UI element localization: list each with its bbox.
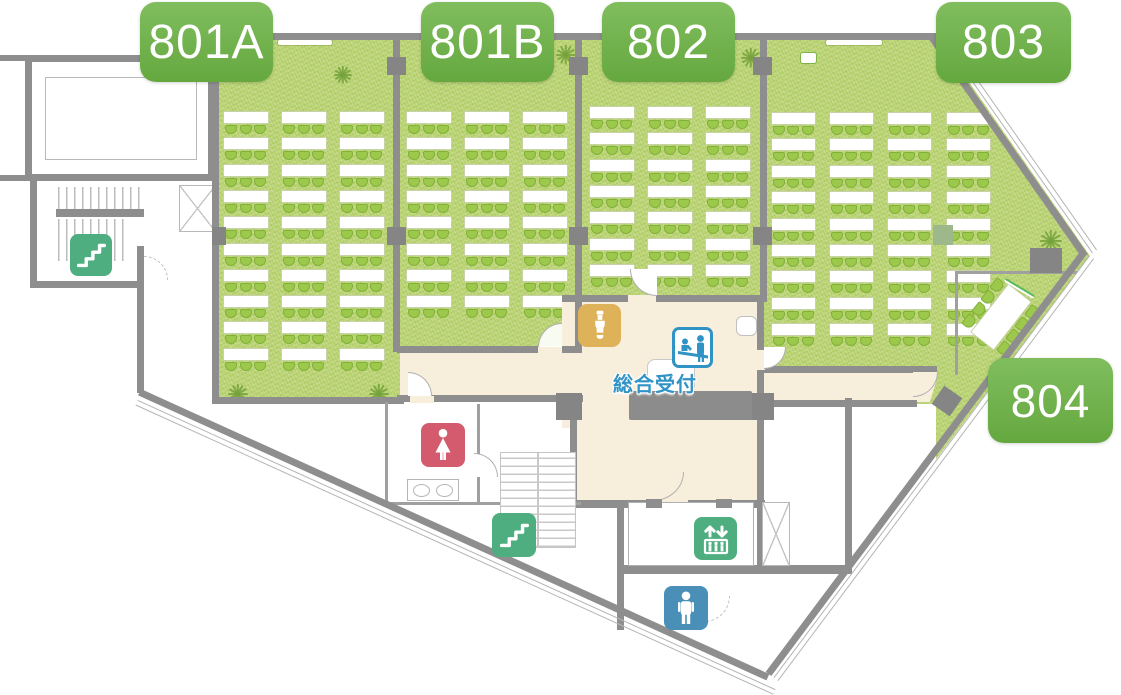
door-gap	[628, 295, 656, 303]
chair	[707, 225, 719, 234]
chair	[254, 362, 266, 371]
chair	[707, 120, 719, 129]
chair	[845, 179, 857, 188]
chair	[903, 205, 915, 214]
chair	[524, 178, 536, 187]
chair	[606, 199, 618, 208]
chair	[787, 337, 799, 346]
chair	[722, 173, 734, 182]
chair	[948, 179, 960, 188]
chair	[773, 205, 785, 214]
chair	[889, 152, 901, 161]
chair	[356, 178, 368, 187]
reception-desk-icon	[672, 327, 713, 368]
chair	[298, 230, 310, 239]
chair	[341, 125, 353, 134]
table	[887, 112, 932, 125]
chair	[664, 173, 676, 182]
chair	[903, 258, 915, 267]
chair	[722, 278, 734, 287]
wall-left	[212, 33, 219, 404]
chair	[678, 173, 690, 182]
podium	[800, 52, 817, 64]
chair	[437, 257, 449, 266]
chair	[408, 151, 420, 160]
chair	[787, 205, 799, 214]
vending-machine-icon	[578, 304, 621, 347]
table	[522, 243, 568, 256]
table	[829, 112, 874, 125]
chair	[845, 284, 857, 293]
chair	[341, 204, 353, 213]
chair	[370, 151, 382, 160]
table	[339, 243, 385, 256]
table	[406, 137, 452, 150]
chair	[977, 232, 989, 241]
round-table	[736, 316, 757, 336]
table	[589, 264, 635, 277]
chair	[736, 146, 748, 155]
table	[522, 269, 568, 282]
table	[887, 244, 932, 257]
chair	[831, 311, 843, 320]
table	[339, 348, 385, 361]
chair	[254, 335, 266, 344]
chair	[283, 362, 295, 371]
chair	[423, 125, 435, 134]
chair	[903, 126, 915, 135]
chair	[312, 125, 324, 134]
chair	[649, 225, 661, 234]
void-room-inner	[45, 77, 197, 160]
column	[212, 227, 226, 245]
table	[946, 191, 991, 204]
table	[281, 137, 327, 150]
chair	[802, 311, 814, 320]
chair	[831, 258, 843, 267]
elevator-door-jamb	[646, 499, 662, 508]
table	[887, 270, 932, 283]
chair	[341, 362, 353, 371]
chair	[845, 337, 857, 346]
chair	[678, 146, 690, 155]
table	[771, 112, 816, 125]
table	[464, 295, 510, 308]
table	[339, 190, 385, 203]
chair	[481, 230, 493, 239]
chair	[539, 125, 551, 134]
chair	[664, 146, 676, 155]
chair	[620, 120, 632, 129]
chair	[240, 125, 252, 134]
chair	[977, 179, 989, 188]
chair	[481, 283, 493, 292]
chair	[370, 125, 382, 134]
chair	[773, 152, 785, 161]
chair	[298, 257, 310, 266]
chair	[240, 309, 252, 318]
table	[464, 137, 510, 150]
chair	[312, 335, 324, 344]
chair	[466, 125, 478, 134]
chair	[495, 230, 507, 239]
chair	[495, 283, 507, 292]
chair	[831, 126, 843, 135]
stairs-icon	[492, 513, 536, 557]
chair	[283, 204, 295, 213]
chair	[591, 146, 603, 155]
chair	[773, 284, 785, 293]
chair	[591, 173, 603, 182]
chair	[466, 230, 478, 239]
chair	[341, 230, 353, 239]
chair	[240, 283, 252, 292]
table	[406, 295, 452, 308]
table	[223, 137, 269, 150]
column	[556, 393, 582, 420]
chair	[495, 151, 507, 160]
chair	[225, 257, 237, 266]
chair	[312, 257, 324, 266]
chair	[889, 179, 901, 188]
chair	[495, 204, 507, 213]
table	[406, 243, 452, 256]
table	[771, 323, 816, 336]
chair	[466, 151, 478, 160]
table	[829, 297, 874, 310]
chair	[254, 178, 266, 187]
table	[647, 238, 693, 251]
table	[589, 159, 635, 172]
table	[281, 321, 327, 334]
table	[281, 348, 327, 361]
chair	[707, 146, 719, 155]
chair	[408, 204, 420, 213]
table	[281, 190, 327, 203]
table	[339, 137, 385, 150]
chair	[437, 204, 449, 213]
table	[223, 164, 269, 177]
chair	[423, 257, 435, 266]
room-label-801b: 801B	[421, 2, 554, 82]
chair	[408, 309, 420, 318]
chair	[437, 178, 449, 187]
chair	[254, 309, 266, 318]
chair	[722, 146, 734, 155]
wall-top	[212, 33, 939, 40]
chair	[298, 362, 310, 371]
chair	[918, 311, 930, 320]
chair	[298, 204, 310, 213]
table	[339, 295, 385, 308]
chair	[591, 120, 603, 129]
table	[406, 269, 452, 282]
chair	[962, 258, 974, 267]
chair	[481, 178, 493, 187]
table	[705, 132, 751, 145]
table	[946, 165, 991, 178]
chair	[606, 278, 618, 287]
chair	[903, 337, 915, 346]
chair	[283, 125, 295, 134]
chair	[356, 362, 368, 371]
table	[887, 165, 932, 178]
chair	[466, 283, 478, 292]
chair	[591, 225, 603, 234]
chair	[664, 120, 676, 129]
chair	[736, 173, 748, 182]
chair	[948, 126, 960, 135]
column	[753, 57, 772, 75]
table	[281, 295, 327, 308]
corridor-east	[760, 371, 918, 402]
table	[339, 111, 385, 124]
chair	[356, 204, 368, 213]
table	[522, 190, 568, 203]
shaft-x	[762, 502, 790, 566]
chair	[606, 252, 618, 261]
table	[946, 138, 991, 151]
chair	[802, 126, 814, 135]
chair	[736, 225, 748, 234]
chair	[962, 179, 974, 188]
chair	[678, 252, 690, 261]
chair	[831, 284, 843, 293]
chair	[225, 283, 237, 292]
chair	[539, 178, 551, 187]
table	[406, 111, 452, 124]
chair	[408, 257, 420, 266]
reception-label: 総合受付	[613, 368, 697, 397]
chair	[620, 199, 632, 208]
room-label-803: 803	[936, 2, 1071, 83]
chair	[553, 257, 565, 266]
staircase-landing	[56, 209, 144, 217]
chair	[524, 309, 536, 318]
chair	[591, 252, 603, 261]
table	[705, 238, 751, 251]
chair	[466, 204, 478, 213]
chair	[977, 205, 989, 214]
door-arc-stair-upper	[144, 256, 168, 280]
chair	[370, 204, 382, 213]
chair	[312, 309, 324, 318]
chair	[553, 178, 565, 187]
table	[887, 191, 932, 204]
chair	[408, 230, 420, 239]
chair	[240, 151, 252, 160]
chair	[225, 362, 237, 371]
chair	[860, 311, 872, 320]
chair	[283, 283, 295, 292]
chair	[649, 173, 661, 182]
chair	[370, 178, 382, 187]
chair	[773, 311, 785, 320]
table	[829, 165, 874, 178]
chair	[860, 232, 872, 241]
chair	[437, 309, 449, 318]
chair	[240, 257, 252, 266]
chair	[254, 204, 266, 213]
table	[589, 185, 635, 198]
chair	[773, 179, 785, 188]
chair	[948, 258, 960, 267]
column	[387, 57, 406, 75]
chair	[889, 232, 901, 241]
table	[464, 190, 510, 203]
table	[771, 244, 816, 257]
chair	[860, 179, 872, 188]
table	[887, 138, 932, 151]
chair	[707, 252, 719, 261]
chair	[539, 151, 551, 160]
table	[464, 164, 510, 177]
room-label-804: 804	[988, 358, 1113, 443]
chair	[437, 151, 449, 160]
chair	[524, 257, 536, 266]
chair	[889, 311, 901, 320]
table	[771, 165, 816, 178]
chair	[787, 311, 799, 320]
chair	[722, 252, 734, 261]
chair	[240, 178, 252, 187]
chair	[860, 126, 872, 135]
chair	[341, 283, 353, 292]
chair	[787, 126, 799, 135]
table	[281, 216, 327, 229]
chair	[312, 362, 324, 371]
womens-restroom-icon	[421, 423, 465, 467]
chair	[773, 126, 785, 135]
chair	[903, 311, 915, 320]
chair	[722, 199, 734, 208]
column	[569, 57, 588, 75]
chair	[977, 126, 989, 135]
chair	[466, 178, 478, 187]
chair	[370, 362, 382, 371]
chair	[664, 252, 676, 261]
chair	[254, 257, 266, 266]
chair	[423, 283, 435, 292]
chair	[283, 309, 295, 318]
chair	[831, 337, 843, 346]
chair	[707, 173, 719, 182]
table	[339, 321, 385, 334]
chair	[620, 225, 632, 234]
chair	[423, 151, 435, 160]
wall-801a-bottom	[212, 397, 404, 404]
table	[647, 185, 693, 198]
table	[339, 164, 385, 177]
table	[829, 218, 874, 231]
chair	[678, 225, 690, 234]
sink-basin	[436, 484, 453, 497]
chair	[408, 283, 420, 292]
chair	[356, 309, 368, 318]
chair	[918, 152, 930, 161]
table	[522, 164, 568, 177]
chair	[240, 230, 252, 239]
table	[522, 216, 568, 229]
chair	[312, 283, 324, 292]
chair	[356, 151, 368, 160]
chair	[606, 120, 618, 129]
chair	[437, 283, 449, 292]
chair	[341, 178, 353, 187]
chair	[341, 257, 353, 266]
chair	[356, 230, 368, 239]
chair	[860, 284, 872, 293]
chair	[298, 125, 310, 134]
chair	[678, 120, 690, 129]
stairs-icon	[70, 234, 112, 276]
table	[223, 321, 269, 334]
chair	[481, 257, 493, 266]
chair	[254, 283, 266, 292]
chair	[539, 204, 551, 213]
chair	[524, 151, 536, 160]
chair	[524, 204, 536, 213]
chair	[948, 337, 960, 346]
chair	[977, 258, 989, 267]
chair	[845, 311, 857, 320]
table	[705, 106, 751, 119]
chair	[312, 230, 324, 239]
column	[1030, 248, 1062, 273]
table	[339, 216, 385, 229]
table	[647, 132, 693, 145]
chair	[962, 126, 974, 135]
floor-plan: 総合受付	[0, 0, 1121, 695]
chair	[524, 283, 536, 292]
chair	[495, 309, 507, 318]
chair	[736, 199, 748, 208]
chair	[225, 230, 237, 239]
table	[829, 323, 874, 336]
column	[753, 227, 772, 245]
table	[647, 211, 693, 224]
chair	[341, 309, 353, 318]
chair	[591, 199, 603, 208]
chair	[240, 335, 252, 344]
chair	[283, 257, 295, 266]
room-label-802: 802	[602, 2, 735, 82]
chair	[707, 199, 719, 208]
column	[569, 227, 588, 245]
elevator-door-jamb	[716, 499, 732, 508]
chair	[370, 335, 382, 344]
table	[464, 269, 510, 282]
chair	[773, 337, 785, 346]
chair	[948, 205, 960, 214]
chair	[736, 252, 748, 261]
chair	[722, 225, 734, 234]
chair	[678, 278, 690, 287]
mens-restroom-icon	[664, 586, 708, 630]
chair	[889, 258, 901, 267]
chair	[481, 309, 493, 318]
chair	[606, 225, 618, 234]
chair	[620, 173, 632, 182]
chair	[466, 309, 478, 318]
chair	[341, 335, 353, 344]
chair	[889, 284, 901, 293]
wall-divider-802-803	[760, 40, 767, 298]
chair	[860, 205, 872, 214]
table	[705, 211, 751, 224]
chair	[802, 337, 814, 346]
chair	[225, 125, 237, 134]
